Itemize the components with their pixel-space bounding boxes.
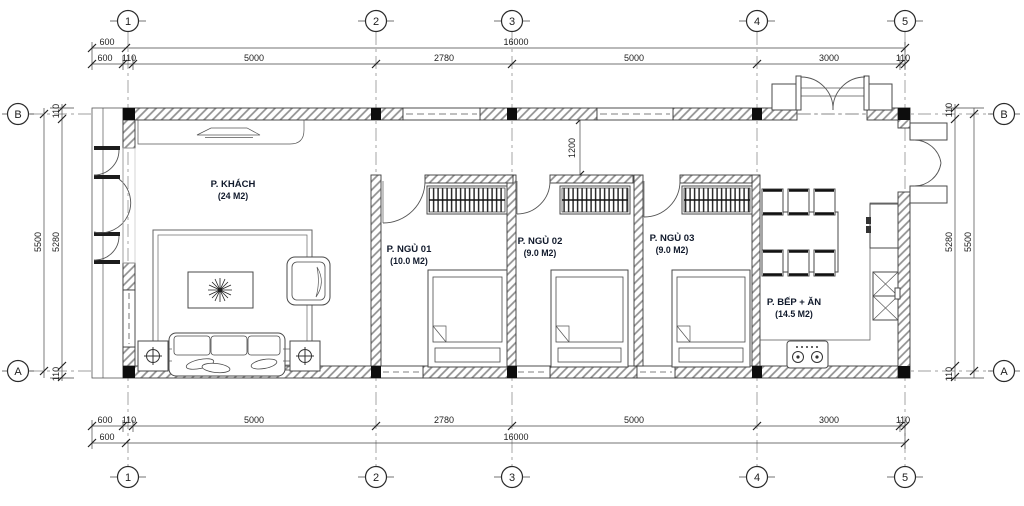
bed [428,270,507,367]
dim-label: 5000 [624,415,644,425]
wardrobe [427,186,507,214]
room-area-bedroom-3: (9.0 M2) [656,245,689,255]
dim-label: 110 [896,53,910,63]
grid-bubble-label: 3 [509,16,515,28]
sofa [169,333,285,376]
grid-bubble-label: 5 [902,16,908,28]
room-label-bedroom-2: P. NGỦ 02 [518,235,563,247]
side-table-left [138,341,172,371]
coffee-table [188,272,253,308]
grid-bubble-label: 2 [373,472,379,484]
grid-bubble-label: 1 [125,472,131,484]
dim-label: 16000 [503,432,528,442]
dim-label: 16000 [503,37,528,47]
window-top-1 [403,108,480,120]
dim-label: 600 [99,432,114,442]
grid-bubble-label: A [14,366,22,378]
room-area-bedroom-1: (10.0 M2) [390,256,428,266]
dining-chair [762,189,783,215]
dim-label: 600 [97,53,112,63]
room-label-bedroom-1: P. NGỦ 01 [387,243,432,255]
grid-bubble-label: 4 [754,472,760,484]
dim-label: 110 [896,415,910,425]
dim-label: 5280 [944,232,954,252]
window-bottom-3 [637,366,675,378]
room-living: P. KHÁCH (24 M2) [138,120,330,376]
dining-chair [814,250,835,276]
dining-chair [814,189,835,215]
floor-plan-canvas: 600 16000 600 110 5000 2780 5000 3000 11… [0,0,1024,501]
room-label-living: P. KHÁCH [211,179,256,190]
dim-label: 110 [944,103,954,117]
dim-label: 5500 [33,232,43,252]
dim-label: 600 [97,415,112,425]
room-area-living: (24 M2) [218,191,248,201]
floor-plan-svg: 600 16000 600 110 5000 2780 5000 3000 11… [0,0,1024,501]
room-area-bedroom-2: (9.0 M2) [524,248,557,258]
entrance-double-door [772,76,892,114]
dim-label: 3000 [819,415,839,425]
room-label-bedroom-3: P. NGỦ 03 [650,232,695,244]
grid-bubble-label: 5 [902,472,908,484]
grid-bubble-label: 3 [509,472,515,484]
bed [551,270,628,367]
dim-label: 5000 [244,415,264,425]
door-arc [517,181,550,214]
armchair [287,257,330,305]
dim-label: 110 [122,53,136,63]
dim-label: 600 [99,37,114,47]
dining-chair [788,250,809,276]
room-bedroom-2: P. NGỦ 02 (9.0 M2) [517,181,630,367]
door-arc [644,181,680,217]
dim-label: 110 [51,367,61,381]
room-label-kitchen: P. BẾP + ĂN [767,297,821,308]
room-bedroom-1: P. NGỦ 01 (10.0 M2) [383,181,507,367]
dining-chair [762,250,783,276]
grid-bubble-label: A [1000,366,1008,378]
grid-bubble-label: 4 [754,16,760,28]
dim-label: 110 [122,415,136,425]
dim-label-passage: 1200 [567,138,577,158]
door-arc [383,181,425,223]
room-area-kitchen: (14.5 M2) [775,309,813,319]
dim-label: 110 [51,104,61,118]
side-door [910,123,947,203]
grid-bubble-label: B [14,109,21,121]
sink [873,272,900,320]
fridge [866,204,898,248]
window-top-2 [597,108,673,120]
wardrobe [682,186,752,214]
room-bedroom-3: P. NGỦ 03 (9.0 M2) [644,181,752,367]
dim-label: 5280 [51,232,61,252]
window-left [123,290,135,347]
grid-bubble-label: B [1000,109,1007,121]
dining-chair [788,189,809,215]
wardrobe [560,186,630,214]
window-bottom-2 [515,366,550,378]
stove [787,341,828,368]
dim-label: 2780 [434,415,454,425]
grid-bubble-label: 2 [373,16,379,28]
room-kitchen-dining: P. BẾP + ĂN (14.5 M2) [760,189,900,368]
dim-label: 5000 [624,53,644,63]
dim-label: 3000 [819,53,839,63]
dim-label: 110 [944,367,954,381]
dining-set [762,189,838,276]
bed [672,270,750,367]
dim-label: 5000 [244,53,264,63]
window-bottom-1 [380,366,423,378]
dim-label: 5500 [963,232,973,252]
grid-bubble-label: 1 [125,16,131,28]
tv-icon [197,128,260,138]
dim-label: 2780 [434,53,454,63]
